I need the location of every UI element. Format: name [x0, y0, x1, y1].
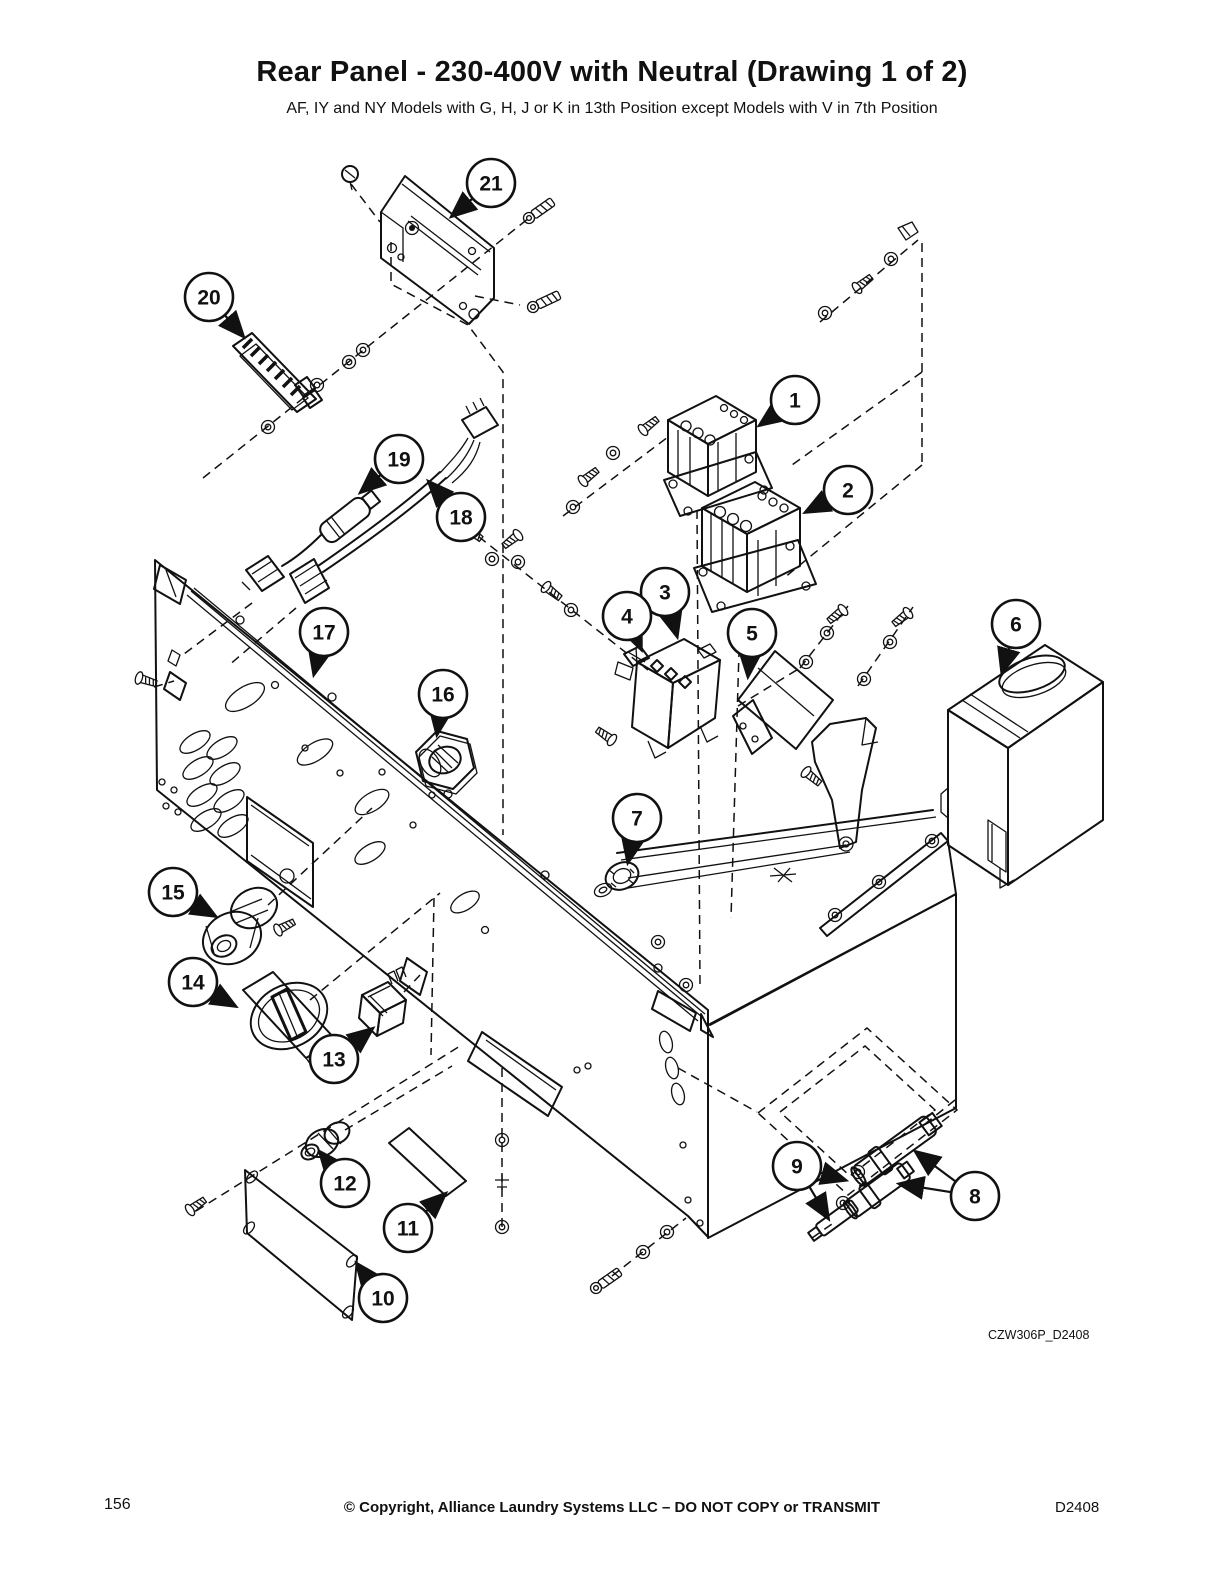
callout-number-16: 16: [431, 684, 454, 707]
figure-caption: CZW306P_D2408: [988, 1328, 1089, 1342]
callout-number-4: 4: [621, 606, 633, 629]
callout-number-19: 19: [387, 449, 410, 472]
footer-copyright: © Copyright, Alliance Laundry Systems LL…: [0, 1499, 1224, 1516]
callout-layer: 123456789101112131415161718192021: [149, 159, 1040, 1322]
callout-arrow-20: [225, 315, 243, 336]
hardware: [134, 166, 918, 1296]
manual-page: Rear Panel - 230-400V with Neutral (Draw…: [0, 0, 1224, 1584]
bracket-screw: [799, 765, 824, 789]
exploded-parts-diagram: 123456789101112131415161718192021: [0, 0, 1224, 1584]
callout-number-5: 5: [746, 623, 758, 646]
callout-arrow-11: [426, 1194, 445, 1212]
callout-number-10: 10: [371, 1288, 394, 1311]
part-6-enclosure: [941, 645, 1103, 888]
callout-number-18: 18: [449, 507, 473, 530]
callout-arrow-10: [357, 1264, 368, 1279]
callout-number-6: 6: [1010, 614, 1022, 637]
callout-number-17: 17: [312, 622, 335, 645]
callout-number-13: 13: [322, 1049, 345, 1072]
part-16-locknut: [416, 731, 477, 794]
callout-arrow-17: [314, 655, 318, 674]
part-13-rocker-switch: [359, 967, 406, 1036]
callout-number-2: 2: [842, 480, 854, 503]
part-7-grommet: [592, 857, 643, 899]
callout-number-9: 9: [791, 1156, 803, 1179]
part-3-4-breaker: [594, 639, 720, 758]
callout-arrow-21: [452, 199, 473, 216]
callout-arrow-5: [748, 657, 750, 676]
callout-arrow-2: [806, 501, 827, 512]
callout-number-1: 1: [789, 390, 801, 413]
part-12-cable-gland: [299, 1118, 353, 1162]
callout-arrow-14: [214, 994, 235, 1006]
callout-arrow-1: [760, 414, 775, 425]
callout-number-15: 15: [161, 882, 185, 905]
clip-fastener: [770, 868, 796, 882]
hook-bracket: [812, 718, 878, 851]
callout-number-3: 3: [659, 582, 671, 605]
callout-number-12: 12: [333, 1173, 356, 1196]
footer-doc-code: D2408: [1055, 1499, 1099, 1516]
callout-arrow-15: [194, 904, 215, 916]
callout-arrow-8: [900, 1184, 951, 1192]
callout-number-7: 7: [631, 808, 643, 831]
callout-number-14: 14: [181, 972, 205, 995]
callout-number-20: 20: [197, 287, 220, 310]
part-1-contactor: [664, 396, 772, 516]
page-subtitle: AF, IY and NY Models with G, H, J or K i…: [0, 100, 1224, 118]
part-2-contactor: [694, 482, 816, 612]
assembly-dashed-lines: [154, 184, 957, 1276]
callout-arrow-19: [361, 475, 381, 492]
callout-arrow-9: [809, 1187, 828, 1218]
part-15-cable-gland: [194, 880, 297, 974]
part-20-terminal-strip: [233, 333, 322, 412]
callout-arrow-13: [353, 1029, 372, 1044]
page-title: Rear Panel - 230-400V with Neutral (Draw…: [0, 56, 1224, 89]
callout-number-8: 8: [969, 1186, 981, 1209]
part-11-label: [389, 1128, 466, 1196]
callout-arrow-8: [916, 1152, 956, 1182]
callout-arrow-3: [671, 615, 677, 636]
callout-number-21: 21: [479, 173, 503, 196]
callout-number-11: 11: [397, 1218, 420, 1241]
